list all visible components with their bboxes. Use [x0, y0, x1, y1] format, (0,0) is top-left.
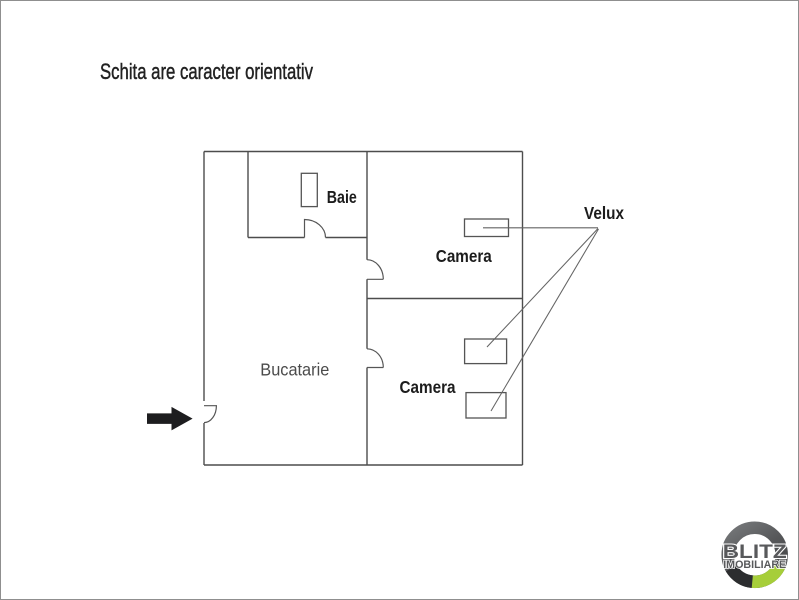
svg-text:Velux: Velux	[584, 203, 624, 223]
svg-text:Camera: Camera	[436, 246, 492, 266]
svg-text:Baie: Baie	[327, 187, 357, 207]
svg-text:Bucatarie: Bucatarie	[260, 360, 329, 380]
svg-text:Schita are caracter orientativ: Schita are caracter orientativ	[100, 59, 313, 84]
svg-text:IMOBILIARE: IMOBILIARE	[723, 559, 786, 571]
svg-text:Camera: Camera	[400, 377, 456, 397]
